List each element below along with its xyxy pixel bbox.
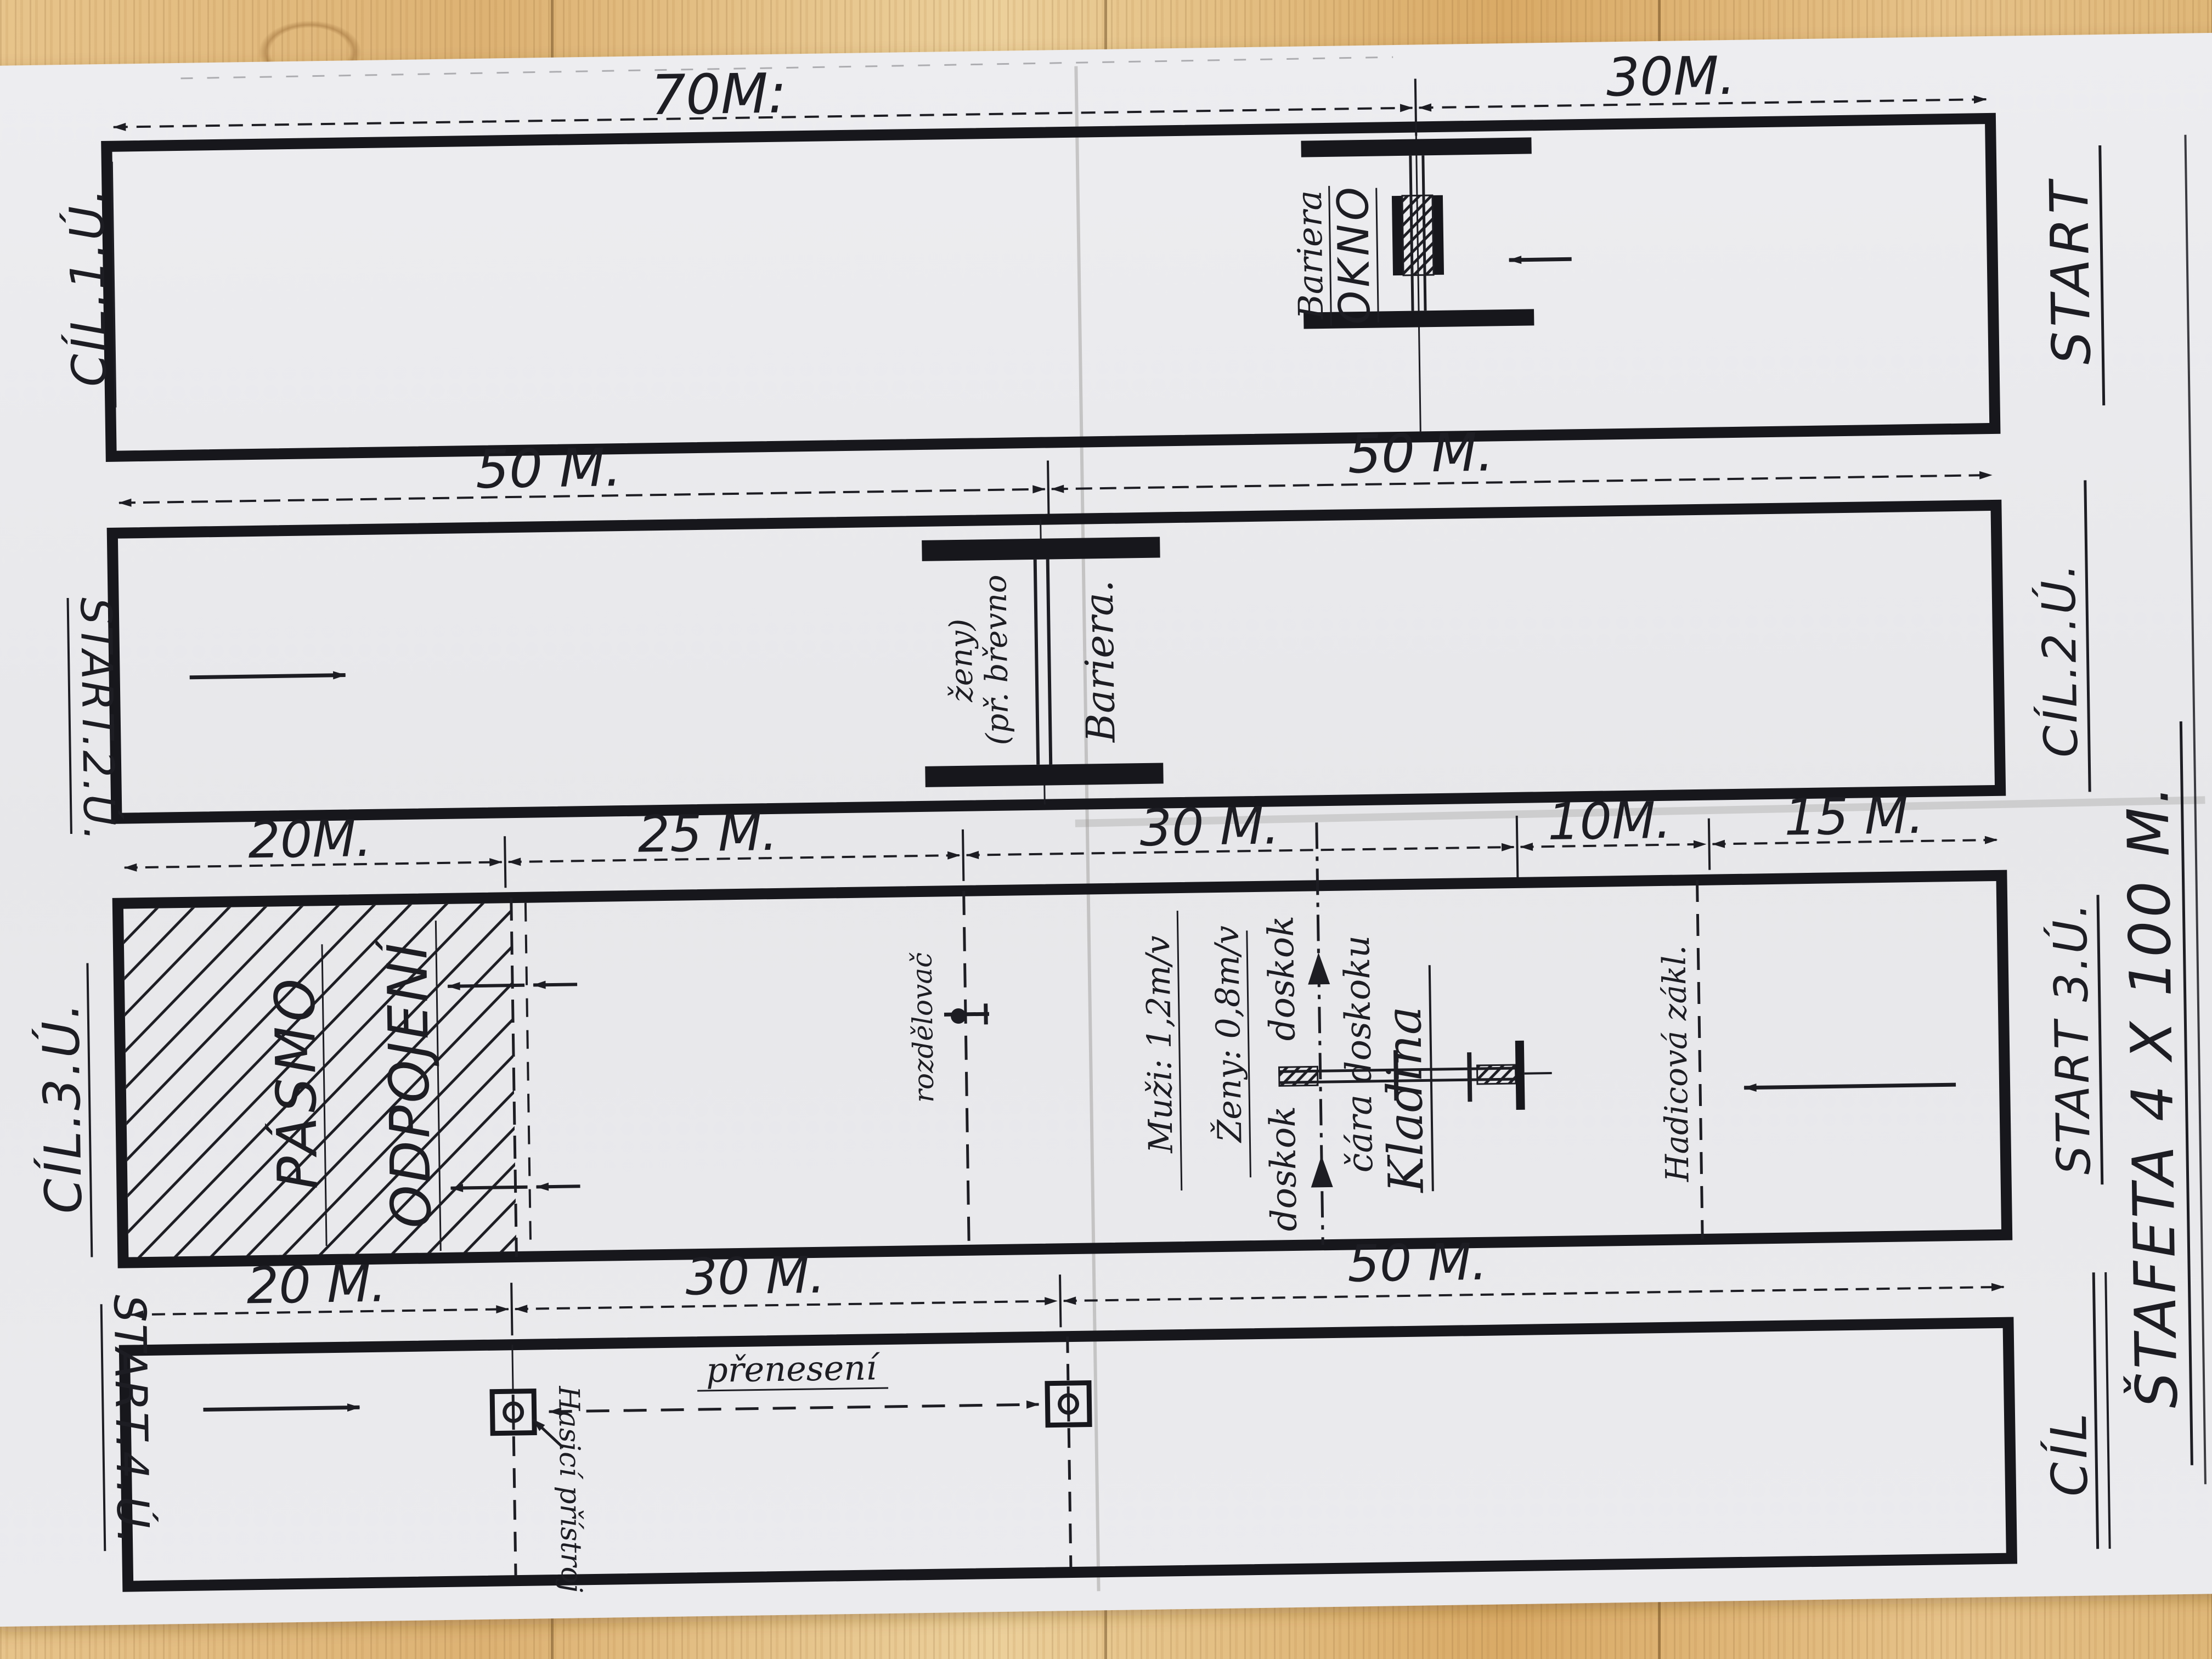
zeny-label: Ženy: 0,8m/v: [1207, 925, 1250, 1144]
kladina-end-stub: [1525, 1073, 1552, 1074]
lane2-direction-arrow: [190, 675, 346, 678]
barrier-bottom-flange: [925, 763, 1164, 787]
dim-tick-50-50: [1048, 460, 1049, 516]
preneseni-label: přenesení: [706, 1347, 881, 1390]
extinguisher1-guide-line-top: [512, 1345, 513, 1391]
dim-tick-20-30-bottom: [511, 1283, 512, 1335]
page-title-stafeta: ŠTAFETA 4 X 100 M.: [2114, 782, 2191, 1409]
barrier-top-flange: [922, 537, 1160, 561]
lane1-bariera-label: Bariera: [1289, 190, 1331, 320]
okno-top-bar: [1301, 137, 1531, 157]
rozdelovac-label: rozdělovač: [906, 952, 940, 1103]
kladina-ramp-left: [1279, 1066, 1317, 1086]
dim-label-20m: 20M.: [247, 809, 372, 870]
hasici-pristroj-label: Hasicí přístroj: [552, 1385, 588, 1593]
lane2-note-line1: (př. břevno: [978, 574, 1016, 746]
dim-label-70m: 70M:: [651, 61, 787, 127]
cara-doskoku-label: čára doskoku: [1337, 935, 1381, 1173]
zone-entry-arrow-2a: [537, 1186, 580, 1187]
dim-label-15m: 15 M.: [1784, 786, 1925, 847]
extinguisher1-axis: [513, 1395, 513, 1430]
zone-entry-arrow-1a: [533, 984, 577, 985]
dim-label-30m-bottom: 30 M.: [685, 1246, 826, 1307]
barrier-axis-stub-top: [1041, 520, 1041, 540]
dim-label-10m: 10M.: [1547, 791, 1672, 851]
photo-of-track-diagram: 70M: 30M. Bariera OKNO: [0, 0, 2212, 1659]
lane2-bariera-label: Bariera.: [1075, 579, 1124, 743]
dim-label-50m-left: 50 M.: [475, 437, 622, 500]
lane2-note-line2: ženy): [943, 618, 980, 703]
kladina-ramp-right: [1477, 1065, 1515, 1084]
kladina-support-right: [1469, 1052, 1470, 1102]
dim-label-25m: 25 M.: [637, 803, 778, 864]
margin-label-cil-3u: CÍL.3.Ú.: [30, 1000, 93, 1214]
dim-label-30m: 30 M.: [1139, 797, 1280, 857]
odpojeni-label: ODPOJENÍ: [375, 938, 444, 1229]
margin-label-start-3u: START 3.Ú.: [2043, 901, 2101, 1175]
dim-tick-10-15: [1709, 819, 1709, 870]
dim-label-50m-bottom: 50 M.: [1347, 1233, 1488, 1294]
margin-label-start: START: [2039, 177, 2103, 365]
dim-tick-30-10: [1517, 816, 1518, 885]
lane1-direction-arrow: [1509, 259, 1572, 260]
hadicova-label: Hadicová zákl.: [1655, 945, 1696, 1183]
dim-tick-30-50-bottom: [1060, 1274, 1060, 1327]
pasmo-label: PÁSMO: [263, 974, 330, 1190]
dim-label-50m-right: 50 M.: [1347, 421, 1494, 485]
lane1-okno-label: OKNO: [1329, 183, 1380, 325]
dim-tick-25-30: [963, 830, 963, 881]
zone-entry-arrow-1b: [448, 985, 524, 986]
okno-window-hatch: [1402, 195, 1434, 275]
zone-entry-arrow-2b: [451, 1187, 528, 1188]
lane4-direction-arrow: [204, 1407, 360, 1409]
dim-label-30m: 30M.: [1606, 45, 1736, 108]
barrier-axis-stub-bottom: [1045, 785, 1045, 805]
muzi-label: Muži: 1,2m/v: [1139, 935, 1181, 1154]
extinguisher2-axis: [1068, 1386, 1069, 1421]
rozdelovac-symbol-bar: [944, 1014, 989, 1014]
paper-sheet: 70M: 30M. Bariera OKNO: [0, 32, 2212, 1627]
margin-label-cil: CÍL: [2039, 1410, 2099, 1497]
dim-label-20m-bottom: 20 M.: [246, 1255, 387, 1316]
margin-label-start-4u: START.4.Ú.: [104, 1294, 159, 1546]
dim-tick-20-25: [505, 836, 505, 888]
doskok-label-bottom: doskok: [1263, 1106, 1305, 1232]
margin-label-cil-1u: CÍL.1.Ú.: [59, 186, 117, 387]
rozdelovac-symbol-tick: [986, 1003, 986, 1024]
doskok-label-top: doskok: [1261, 916, 1303, 1042]
kladina-end-bar: [1515, 1041, 1525, 1110]
margin-label-start-2u: START.2.Ú.: [71, 597, 125, 843]
margin-label-cil-2u: CÍL.2.Ú.: [2032, 561, 2088, 758]
kladina-label: Kladina: [1375, 1006, 1435, 1194]
